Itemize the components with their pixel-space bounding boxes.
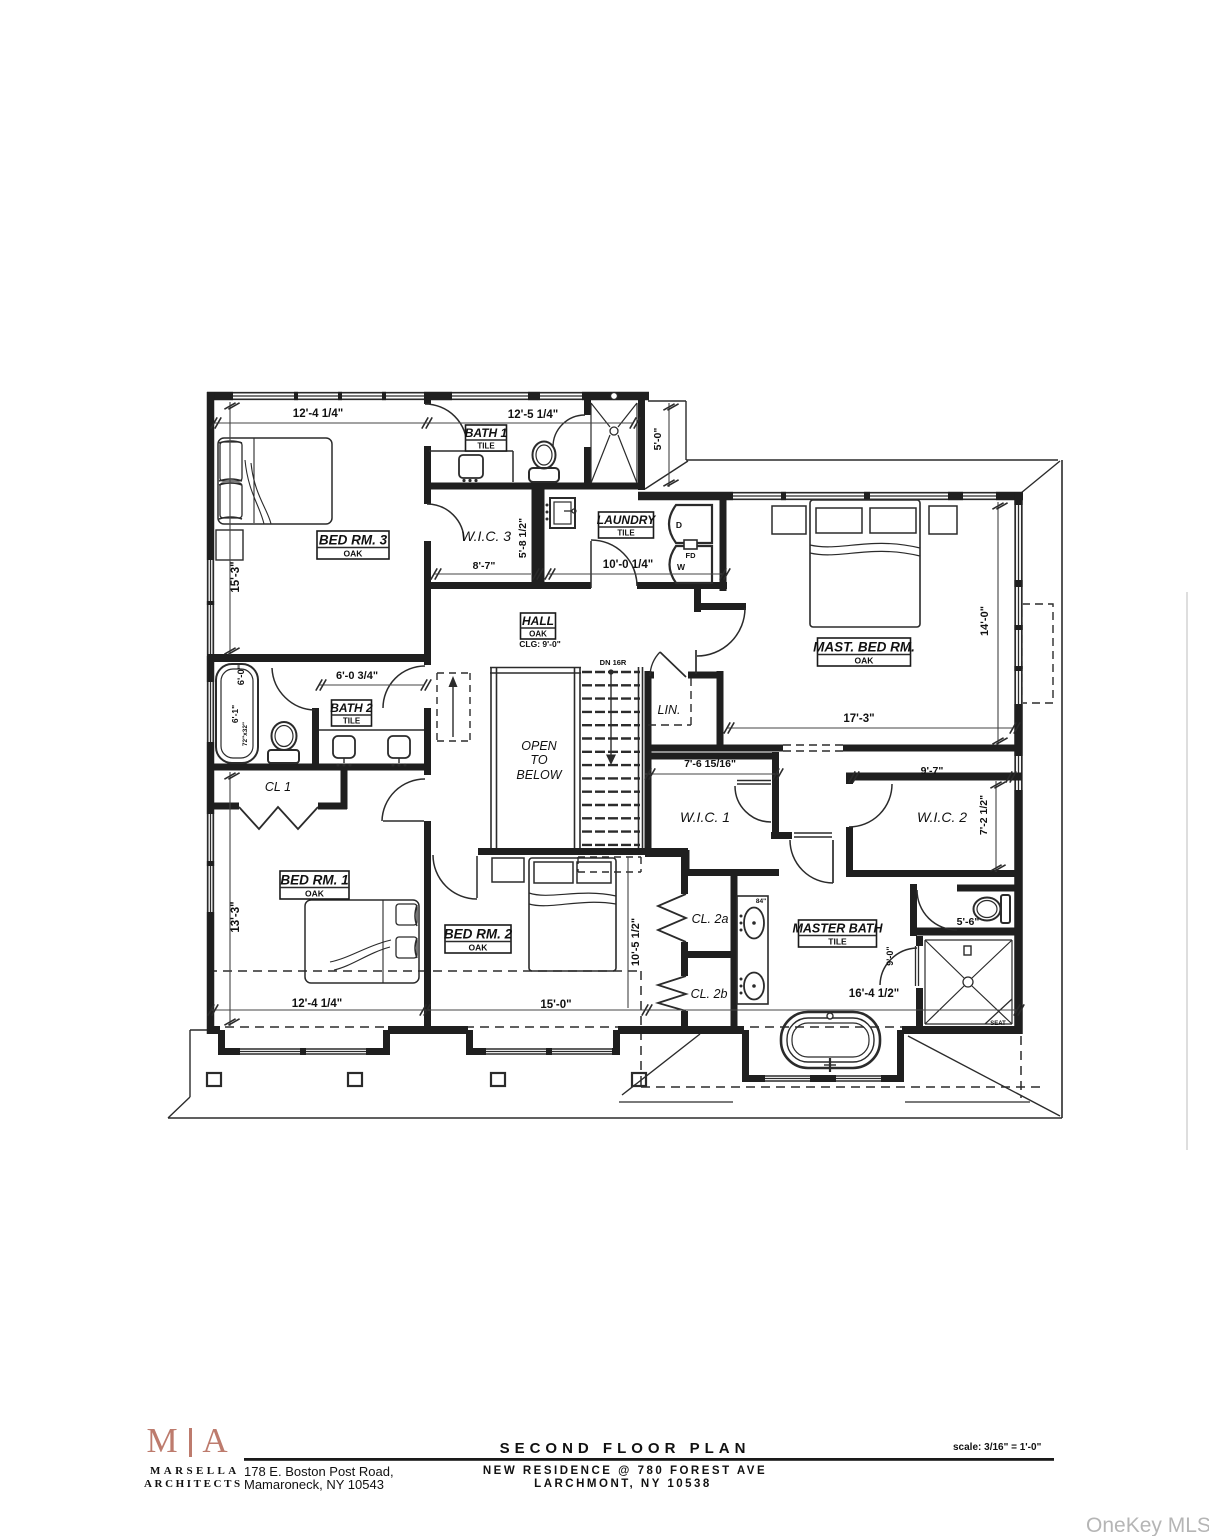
svg-text:Mamaroneck, NY 10543: Mamaroneck, NY 10543 (244, 1477, 384, 1492)
svg-text:8'-7": 8'-7" (473, 560, 496, 572)
svg-text:TILE: TILE (617, 529, 635, 538)
svg-text:DN 16R: DN 16R (600, 658, 627, 667)
svg-text:CLG: 9'-0": CLG: 9'-0" (519, 639, 560, 649)
svg-text:TILE: TILE (828, 937, 847, 947)
svg-text:15'-0": 15'-0" (540, 999, 571, 1011)
svg-text:TO: TO (530, 753, 547, 767)
svg-text:12'-4 1/4": 12'-4 1/4" (292, 998, 342, 1010)
svg-text:CL 1: CL 1 (265, 780, 291, 794)
svg-text:9'-0": 9'-0" (885, 946, 895, 965)
svg-text:W.I.C. 3: W.I.C. 3 (461, 528, 511, 544)
svg-text:LAUNDRY: LAUNDRY (597, 513, 656, 527)
svg-text:16'-4 1/2": 16'-4 1/2" (849, 988, 899, 1000)
svg-text:7'-2 1/2": 7'-2 1/2" (978, 795, 990, 835)
svg-text:13'-3": 13'-3" (230, 901, 242, 932)
svg-text:CL. 2b: CL. 2b (691, 987, 728, 1001)
svg-text:14'-0": 14'-0" (979, 606, 991, 636)
svg-text:12'-4 1/4": 12'-4 1/4" (293, 408, 343, 420)
svg-text:6'-0 3/4": 6'-0 3/4" (336, 670, 378, 682)
svg-text:CL. 2a: CL. 2a (692, 912, 729, 926)
svg-text:15'-3": 15'-3" (230, 561, 242, 592)
svg-text:OAK: OAK (855, 656, 875, 666)
svg-text:BELOW: BELOW (516, 768, 562, 782)
svg-text:NEW RESIDENCE @ 780 FOREST AVE: NEW RESIDENCE @ 780 FOREST AVE (483, 1465, 767, 1477)
svg-text:72"x32": 72"x32" (242, 722, 249, 746)
svg-text:TILE: TILE (477, 442, 495, 451)
svg-text:D: D (676, 520, 682, 530)
svg-text:BATH 2: BATH 2 (330, 701, 373, 715)
svg-text:5'-6": 5'-6" (957, 916, 980, 928)
svg-text:W: W (677, 562, 686, 572)
svg-text:SECOND FLOOR PLAN: SECOND FLOOR PLAN (500, 1440, 751, 1457)
svg-text:W.I.C. 1: W.I.C. 1 (680, 809, 730, 825)
svg-text:M: M (146, 1421, 177, 1460)
svg-text:6'-0": 6'-0" (236, 665, 247, 686)
svg-text:LARCHMONT, NY 10538: LARCHMONT, NY 10538 (534, 1478, 712, 1490)
svg-text:LIN.: LIN. (658, 703, 681, 717)
svg-text:MARSELLA: MARSELLA (150, 1465, 240, 1477)
svg-text:9'-7": 9'-7" (921, 765, 944, 777)
svg-text:BED RM. 3: BED RM. 3 (319, 533, 388, 548)
svg-text:ARCHITECTS: ARCHITECTS (144, 1478, 243, 1490)
svg-text:BATH 1: BATH 1 (465, 426, 508, 440)
svg-text:OAK: OAK (305, 889, 325, 899)
svg-text:HALL: HALL (522, 614, 554, 628)
svg-text:17'-3": 17'-3" (843, 713, 874, 725)
svg-text:SEAT: SEAT (990, 1021, 1006, 1027)
svg-text:10'-0 1/4": 10'-0 1/4" (603, 559, 653, 571)
svg-text:12'-5 1/4": 12'-5 1/4" (508, 409, 558, 421)
svg-text:5'-0": 5'-0" (652, 428, 664, 451)
svg-text:MASTER BATH: MASTER BATH (792, 922, 883, 936)
svg-text:BED RM. 1: BED RM. 1 (280, 873, 348, 888)
svg-text:10'-5 1/2": 10'-5 1/2" (630, 918, 642, 966)
svg-text:OAK: OAK (344, 549, 364, 559)
svg-text:7'-6 15/16": 7'-6 15/16" (684, 758, 736, 770)
svg-text:OPEN: OPEN (521, 739, 557, 753)
svg-text:OAK: OAK (469, 943, 489, 953)
svg-text:OneKey MLS: OneKey MLS (1086, 1514, 1209, 1536)
svg-text:A: A (202, 1421, 228, 1460)
svg-text:5'-8 1/2": 5'-8 1/2" (517, 518, 529, 558)
svg-text:scale: 3/16" = 1'-0": scale: 3/16" = 1'-0" (953, 1442, 1042, 1453)
svg-text:MAST. BED RM.: MAST. BED RM. (813, 640, 915, 655)
svg-text:W.I.C. 2: W.I.C. 2 (917, 809, 967, 825)
svg-text:OAK: OAK (529, 630, 547, 639)
svg-text:84": 84" (756, 898, 766, 905)
svg-text:BED RM. 2: BED RM. 2 (444, 927, 513, 942)
svg-text:TILE: TILE (343, 717, 361, 726)
svg-text:6'-1": 6'-1" (230, 705, 240, 723)
svg-text:FD: FD (686, 551, 697, 560)
